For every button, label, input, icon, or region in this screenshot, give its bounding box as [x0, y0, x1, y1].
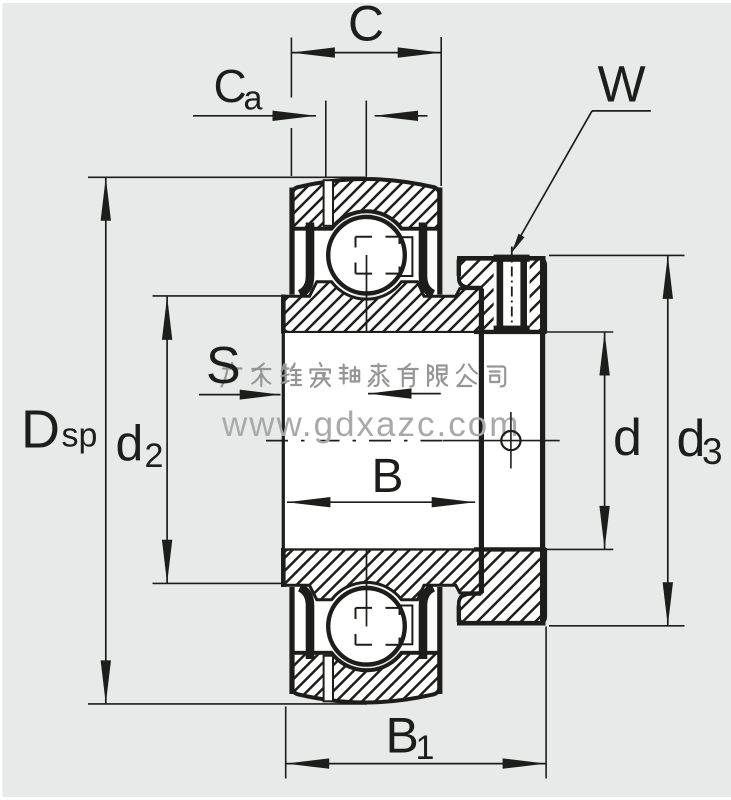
svg-text:2: 2 — [145, 437, 164, 475]
svg-text:W: W — [598, 56, 646, 113]
svg-text:sp: sp — [62, 417, 98, 455]
svg-text:C: C — [214, 60, 247, 112]
svg-text:D: D — [21, 400, 60, 460]
svg-text:B: B — [372, 450, 404, 503]
svg-text:S: S — [206, 337, 241, 395]
svg-text:a: a — [244, 80, 263, 118]
svg-text:B: B — [386, 708, 419, 764]
svg-text:www.gdxazc.com: www.gdxazc.com — [221, 405, 520, 444]
svg-text:C: C — [348, 0, 384, 52]
svg-text:3: 3 — [702, 431, 723, 472]
svg-text:d: d — [613, 409, 642, 467]
svg-text:1: 1 — [416, 729, 435, 767]
svg-text:d: d — [116, 416, 144, 472]
